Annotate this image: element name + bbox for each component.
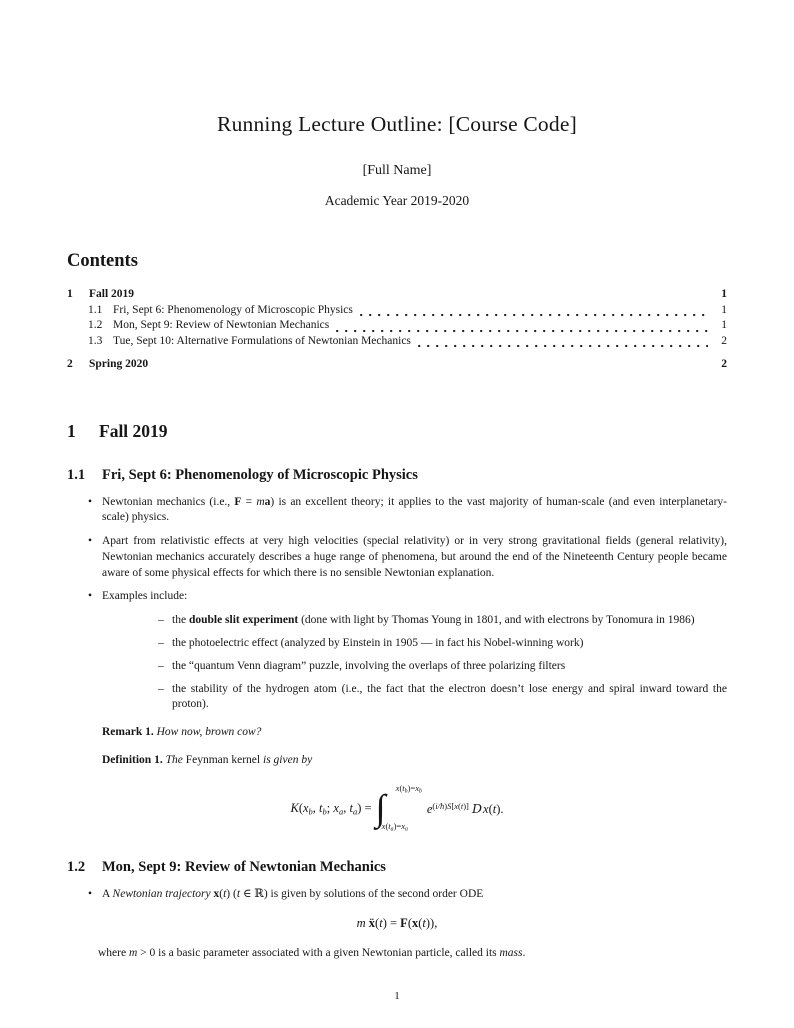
dash-marker: – [158, 613, 164, 629]
sub-list-item: – the photoelectric effect (analyzed by … [102, 636, 727, 652]
toc-dot-leader [336, 321, 708, 333]
contents-heading: Contents [67, 251, 727, 272]
toc-page-number: 2 [713, 334, 727, 350]
section-number: 1 [67, 421, 99, 442]
subsection-title: Fri, Sept 6: Phenomenology of Microscopi… [102, 467, 418, 483]
integral-upper-limit: x(tb)=xb [396, 784, 422, 795]
toc-number: 2 [67, 357, 89, 373]
list-item-text: Newtonian mechanics (i.e., F = ma) is an… [102, 496, 727, 524]
equation-lhs: K(xb, tb; xa, ta) = [290, 801, 371, 816]
toc-number: 1 [67, 287, 89, 303]
bullet-marker: • [88, 887, 92, 903]
integral-lower-limit: x(ta)=xa [382, 822, 422, 833]
bullet-list-1-2: • A Newtonian trajectory x(t) (t ∈ ℝ) is… [67, 887, 727, 903]
dash-marker: – [158, 636, 164, 652]
toc-label: Spring 2020 [89, 357, 148, 373]
sub-list-item-text: the “quantum Venn diagram” puzzle, invol… [172, 660, 565, 672]
toc-number: 1.3 [88, 334, 113, 350]
sub-list-item-text: the photoelectric effect (analyzed by Ei… [172, 637, 583, 649]
toc-label: Mon, Sept 9: Review of Newtonian Mechani… [113, 318, 329, 334]
subsection-heading-1-2: 1.2Mon, Sept 9: Review of Newtonian Mech… [67, 859, 727, 876]
feynman-kernel-equation: K(xb, tb; xa, ta) = ∫ x(tb)=xb x(ta)=xa … [67, 784, 727, 834]
toc-label: Fall 2019 [89, 287, 134, 303]
examples-sublist: – the double slit experiment (done with … [102, 613, 727, 713]
sub-list-item-text: the double slit experiment (done with li… [172, 614, 695, 626]
definition-1: Definition 1. The Feynman kernel is give… [102, 753, 727, 769]
document-title: Running Lecture Outline: [Course Code] [67, 112, 727, 137]
toc-number: 1.2 [88, 318, 113, 334]
list-item: • Newtonian mechanics (i.e., F = ma) is … [67, 495, 727, 527]
document-author: [Full Name] [67, 163, 727, 179]
bullet-marker: • [88, 495, 92, 511]
toc-page-number: 1 [713, 287, 727, 303]
section-title: Fall 2019 [99, 421, 168, 441]
table-of-contents: 1 Fall 2019 1 1.1 Fri, Sept 6: Phenomeno… [67, 287, 727, 373]
bullet-marker: • [88, 534, 92, 550]
dash-marker: – [158, 659, 164, 675]
toc-entry-spring-2020: 2 Spring 2020 2 [67, 357, 727, 373]
subsection-heading-1-1: 1.1Fri, Sept 6: Phenomenology of Microsc… [67, 467, 727, 484]
toc-page-number: 1 [713, 303, 727, 319]
section-heading-fall-2019: 1Fall 2019 [67, 421, 727, 442]
toc-entry-1-2: 1.2 Mon, Sept 9: Review of Newtonian Mec… [67, 318, 727, 334]
toc-number: 1.1 [88, 303, 113, 319]
remark-1: Remark 1. How now, brown cow? [102, 725, 727, 741]
document-content: Running Lecture Outline: [Course Code] [… [0, 0, 794, 961]
subsection-number: 1.2 [67, 859, 102, 876]
document-page: Running Lecture Outline: [Course Code] [… [0, 0, 794, 1028]
toc-dot-leader [418, 336, 708, 348]
sub-list-item-text: the stability of the hydrogen atom (i.e.… [172, 683, 727, 711]
equation-integrand: e(i/ħ)S[x(t)] Dx(t). [427, 801, 504, 817]
list-item-text: Apart from relativistic effects at very … [102, 535, 727, 579]
subsection-title: Mon, Sept 9: Review of Newtonian Mechani… [102, 859, 386, 875]
newton-second-law-equation: m ẍ(t) = F(x(t)), [67, 916, 727, 931]
academic-year: Academic Year 2019-2020 [67, 193, 727, 209]
page-number: 1 [0, 990, 794, 1002]
bullet-list-1-1: • Newtonian mechanics (i.e., F = ma) is … [67, 495, 727, 714]
sub-list-item: – the double slit experiment (done with … [102, 613, 727, 629]
title-block: Running Lecture Outline: [Course Code] [… [67, 0, 727, 209]
sub-list-item: – the “quantum Venn diagram” puzzle, inv… [102, 659, 727, 675]
integral-limits: x(tb)=xb x(ta)=xa [387, 784, 422, 834]
list-item-text: Examples include: [102, 590, 187, 602]
toc-label: Fri, Sept 6: Phenomenology of Microscopi… [113, 303, 353, 319]
toc-entry-1-3: 1.3 Tue, Sept 10: Alternative Formulatio… [67, 334, 727, 350]
dash-marker: – [158, 682, 164, 698]
toc-page-number: 1 [713, 318, 727, 334]
sub-list-item: – the stability of the hydrogen atom (i.… [102, 682, 727, 714]
list-item: • Examples include: – the double slit ex… [67, 589, 727, 713]
list-item: • Apart from relativistic effects at ver… [67, 534, 727, 581]
toc-entry-fall-2019: 1 Fall 2019 1 [67, 287, 727, 303]
bullet-marker: • [88, 589, 92, 605]
list-item-text: A Newtonian trajectory x(t) (t ∈ ℝ) is g… [102, 888, 483, 900]
mass-definition-line: where m > 0 is a basic parameter associa… [98, 946, 727, 962]
toc-label: Tue, Sept 10: Alternative Formulations o… [113, 334, 411, 350]
toc-entry-1-1: 1.1 Fri, Sept 6: Phenomenology of Micros… [67, 303, 727, 319]
toc-page-number: 2 [713, 357, 727, 373]
list-item: • A Newtonian trajectory x(t) (t ∈ ℝ) is… [67, 887, 727, 903]
subsection-number: 1.1 [67, 467, 102, 484]
toc-dot-leader [360, 305, 708, 317]
